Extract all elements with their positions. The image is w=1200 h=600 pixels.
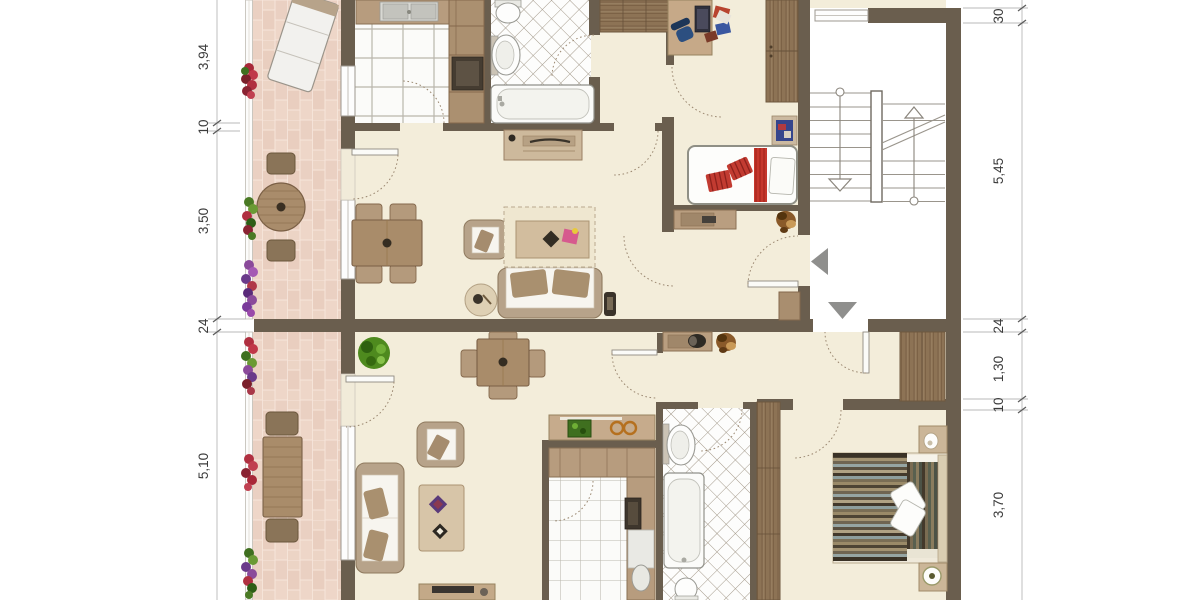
svg-text:1,30: 1,30 — [991, 356, 1006, 382]
svg-text:3,50: 3,50 — [196, 208, 211, 234]
svg-text:3,70: 3,70 — [991, 492, 1006, 518]
svg-text:10: 10 — [991, 397, 1006, 412]
svg-text:5,10: 5,10 — [196, 453, 211, 479]
svg-text:24: 24 — [991, 318, 1006, 334]
svg-text:24: 24 — [196, 318, 211, 334]
svg-text:3,94: 3,94 — [196, 43, 211, 70]
svg-text:10: 10 — [196, 119, 211, 134]
svg-text:30: 30 — [991, 8, 1006, 23]
svg-text:5,45: 5,45 — [991, 158, 1006, 184]
